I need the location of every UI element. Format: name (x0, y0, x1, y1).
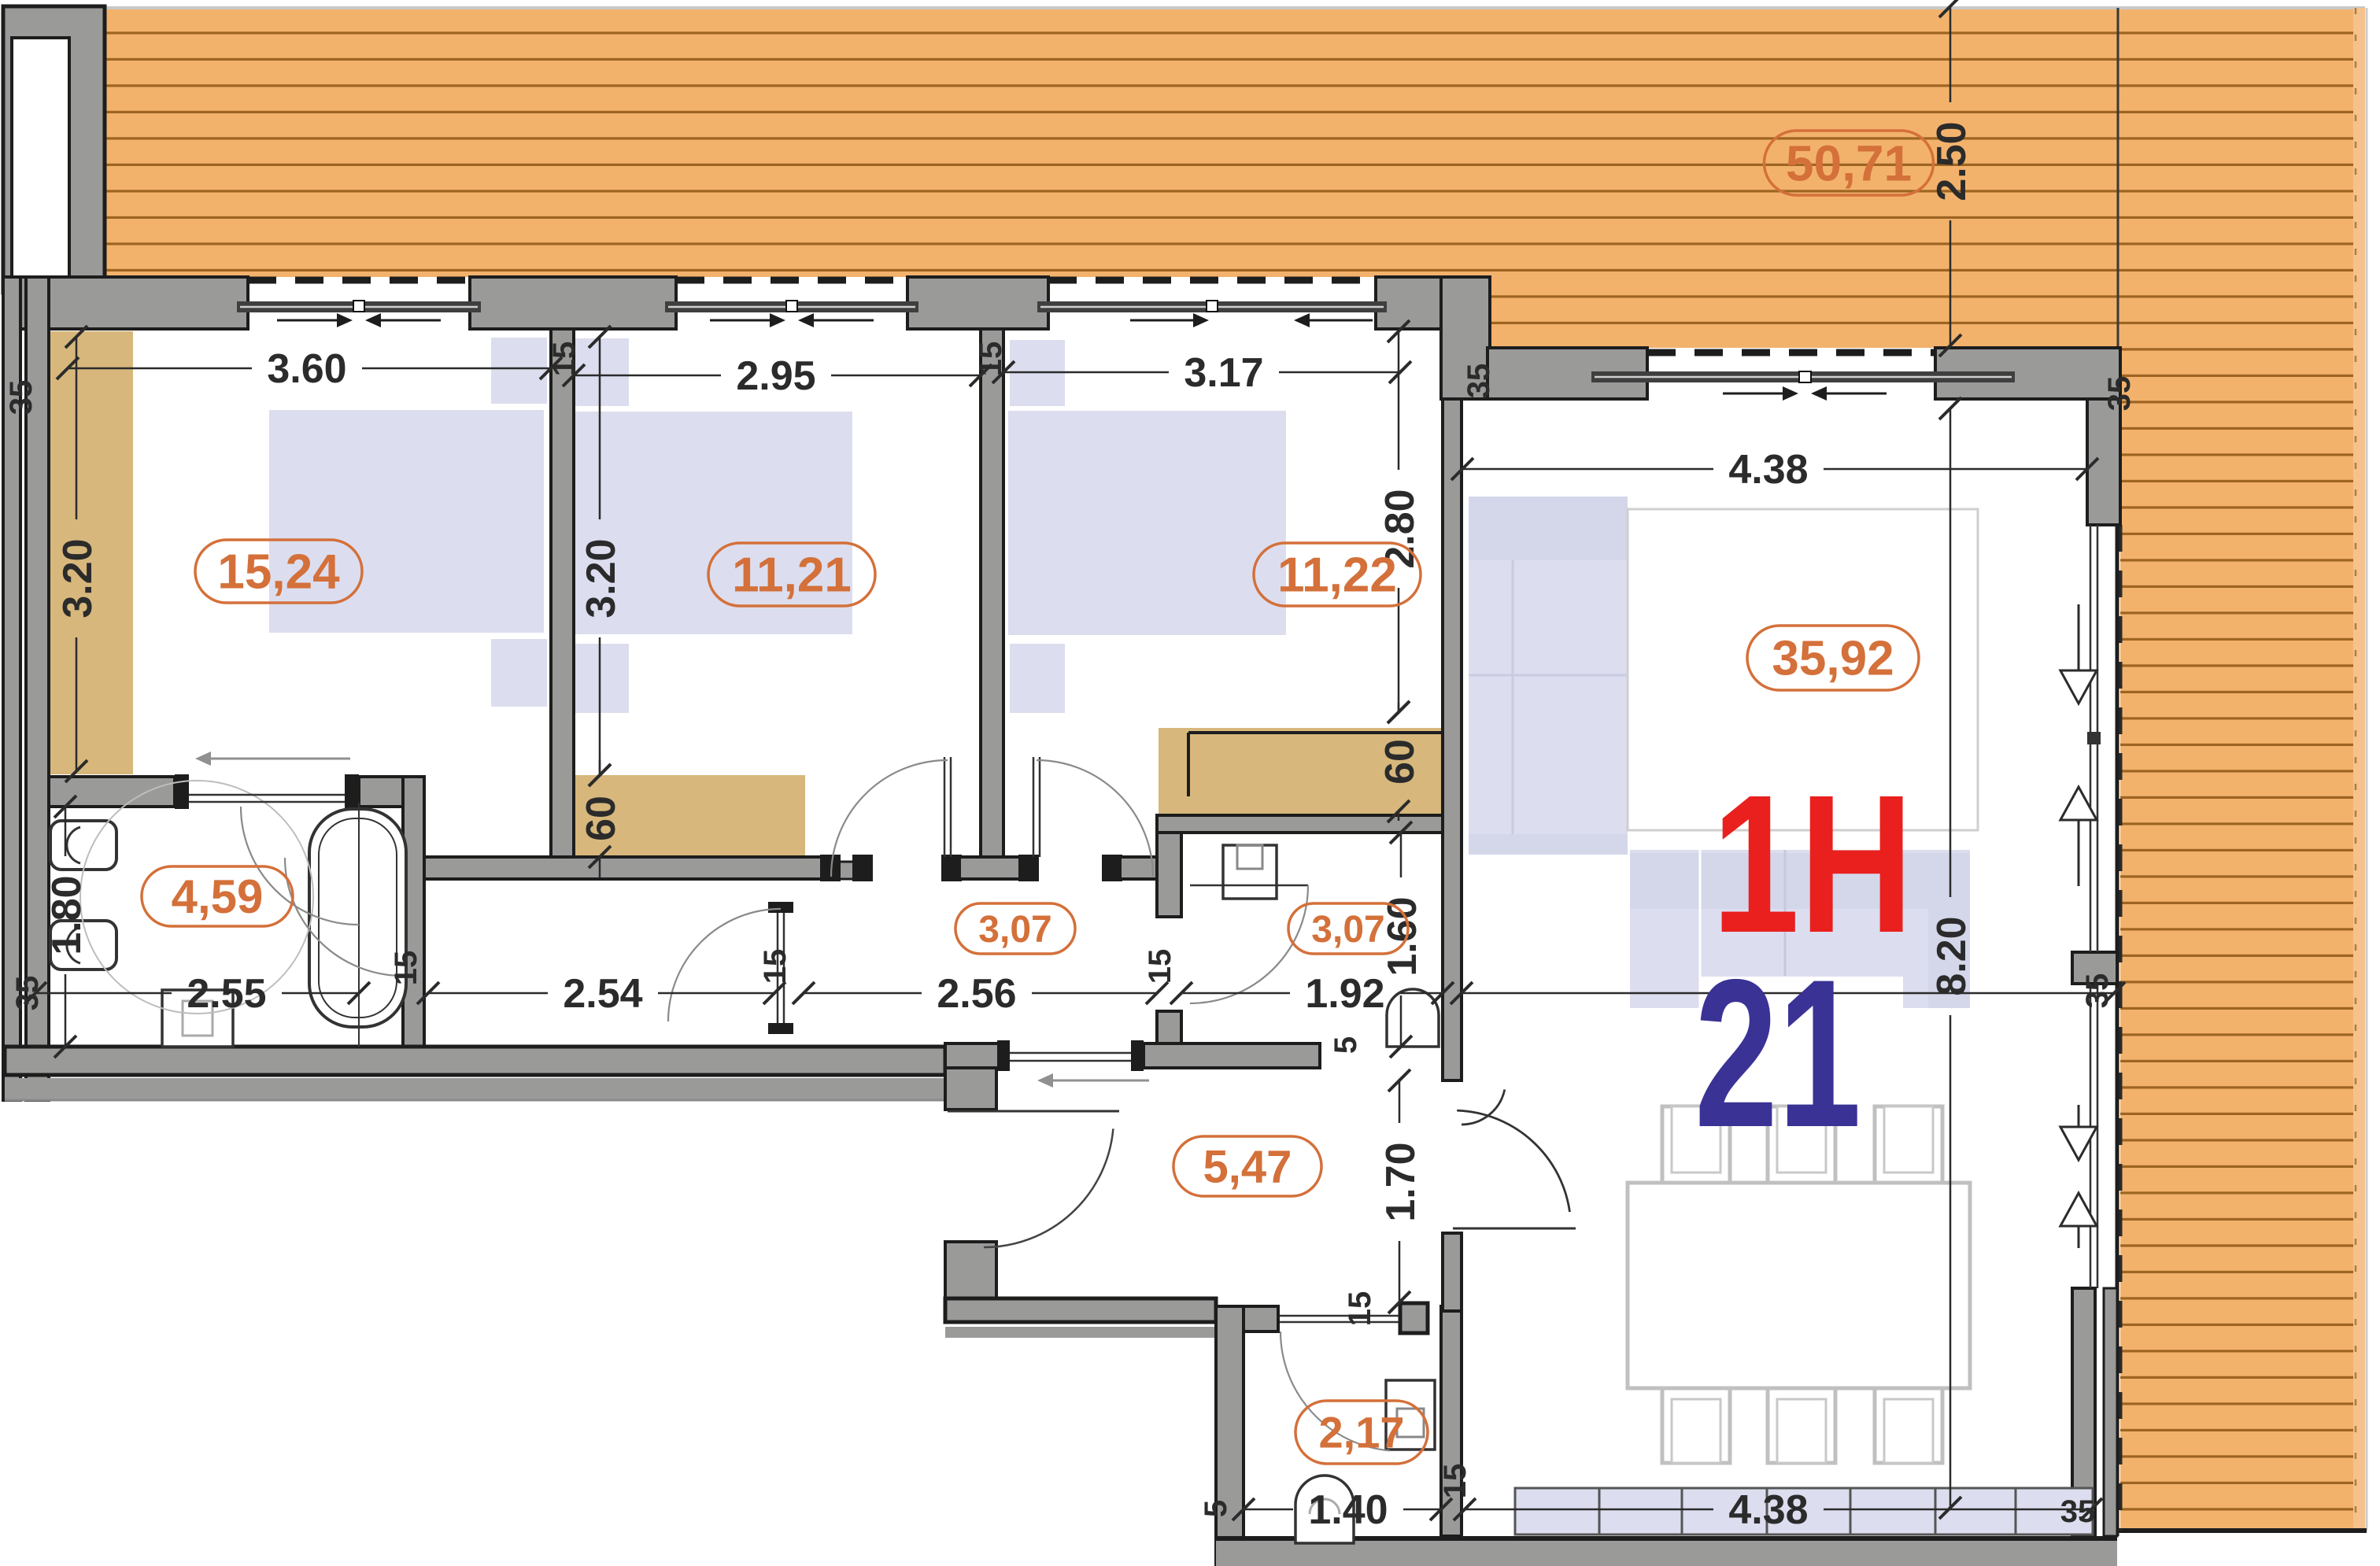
svg-text:1.70: 1.70 (1378, 1142, 1424, 1221)
svg-text:35: 35 (2060, 1494, 2096, 1529)
svg-text:3.17: 3.17 (1184, 350, 1263, 396)
svg-text:35: 35 (10, 976, 45, 1011)
svg-text:3.20: 3.20 (55, 538, 101, 618)
svg-text:2.50: 2.50 (1929, 121, 1975, 201)
svg-text:1.40: 1.40 (1308, 1487, 1388, 1533)
svg-text:1.92: 1.92 (1305, 971, 1384, 1017)
svg-text:5: 5 (1199, 1500, 1233, 1517)
svg-text:2.56: 2.56 (937, 971, 1016, 1017)
svg-text:3.60: 3.60 (267, 346, 346, 392)
svg-text:11,22: 11,22 (1277, 548, 1397, 603)
svg-text:60: 60 (1377, 739, 1423, 785)
svg-text:2.54: 2.54 (563, 971, 642, 1017)
svg-text:35: 35 (2102, 376, 2137, 412)
svg-text:35: 35 (2080, 973, 2115, 1009)
svg-text:5: 5 (1329, 1036, 1363, 1054)
svg-text:3,07: 3,07 (1311, 909, 1384, 951)
svg-text:15: 15 (1143, 949, 1177, 984)
svg-text:21: 21 (1694, 935, 1861, 1171)
svg-text:3,07: 3,07 (978, 909, 1051, 951)
svg-text:15: 15 (547, 342, 582, 377)
svg-text:15: 15 (974, 342, 1008, 377)
svg-text:2,17: 2,17 (1319, 1408, 1405, 1457)
svg-text:15: 15 (758, 949, 793, 984)
svg-text:50,71: 50,71 (1786, 135, 1912, 191)
svg-text:4.38: 4.38 (1728, 447, 1808, 493)
svg-text:35: 35 (4, 380, 39, 416)
svg-text:60: 60 (578, 796, 624, 841)
svg-text:4.38: 4.38 (1728, 1487, 1808, 1533)
svg-text:15,24: 15,24 (217, 545, 340, 600)
svg-text:15: 15 (389, 951, 423, 986)
svg-text:15: 15 (1438, 1464, 1473, 1499)
svg-text:8.20: 8.20 (1929, 916, 1975, 995)
svg-text:35: 35 (1462, 364, 1496, 399)
svg-text:4,59: 4,59 (172, 870, 264, 923)
svg-text:5,47: 5,47 (1203, 1141, 1292, 1192)
svg-text:15: 15 (1343, 1291, 1377, 1327)
svg-text:2.55: 2.55 (187, 971, 266, 1017)
svg-text:1.60: 1.60 (1380, 896, 1425, 976)
svg-text:2.95: 2.95 (736, 353, 815, 399)
svg-text:1.80: 1.80 (44, 875, 90, 955)
svg-text:35,92: 35,92 (1772, 632, 1894, 686)
svg-text:3.20: 3.20 (578, 538, 624, 618)
svg-text:11,21: 11,21 (732, 548, 852, 603)
